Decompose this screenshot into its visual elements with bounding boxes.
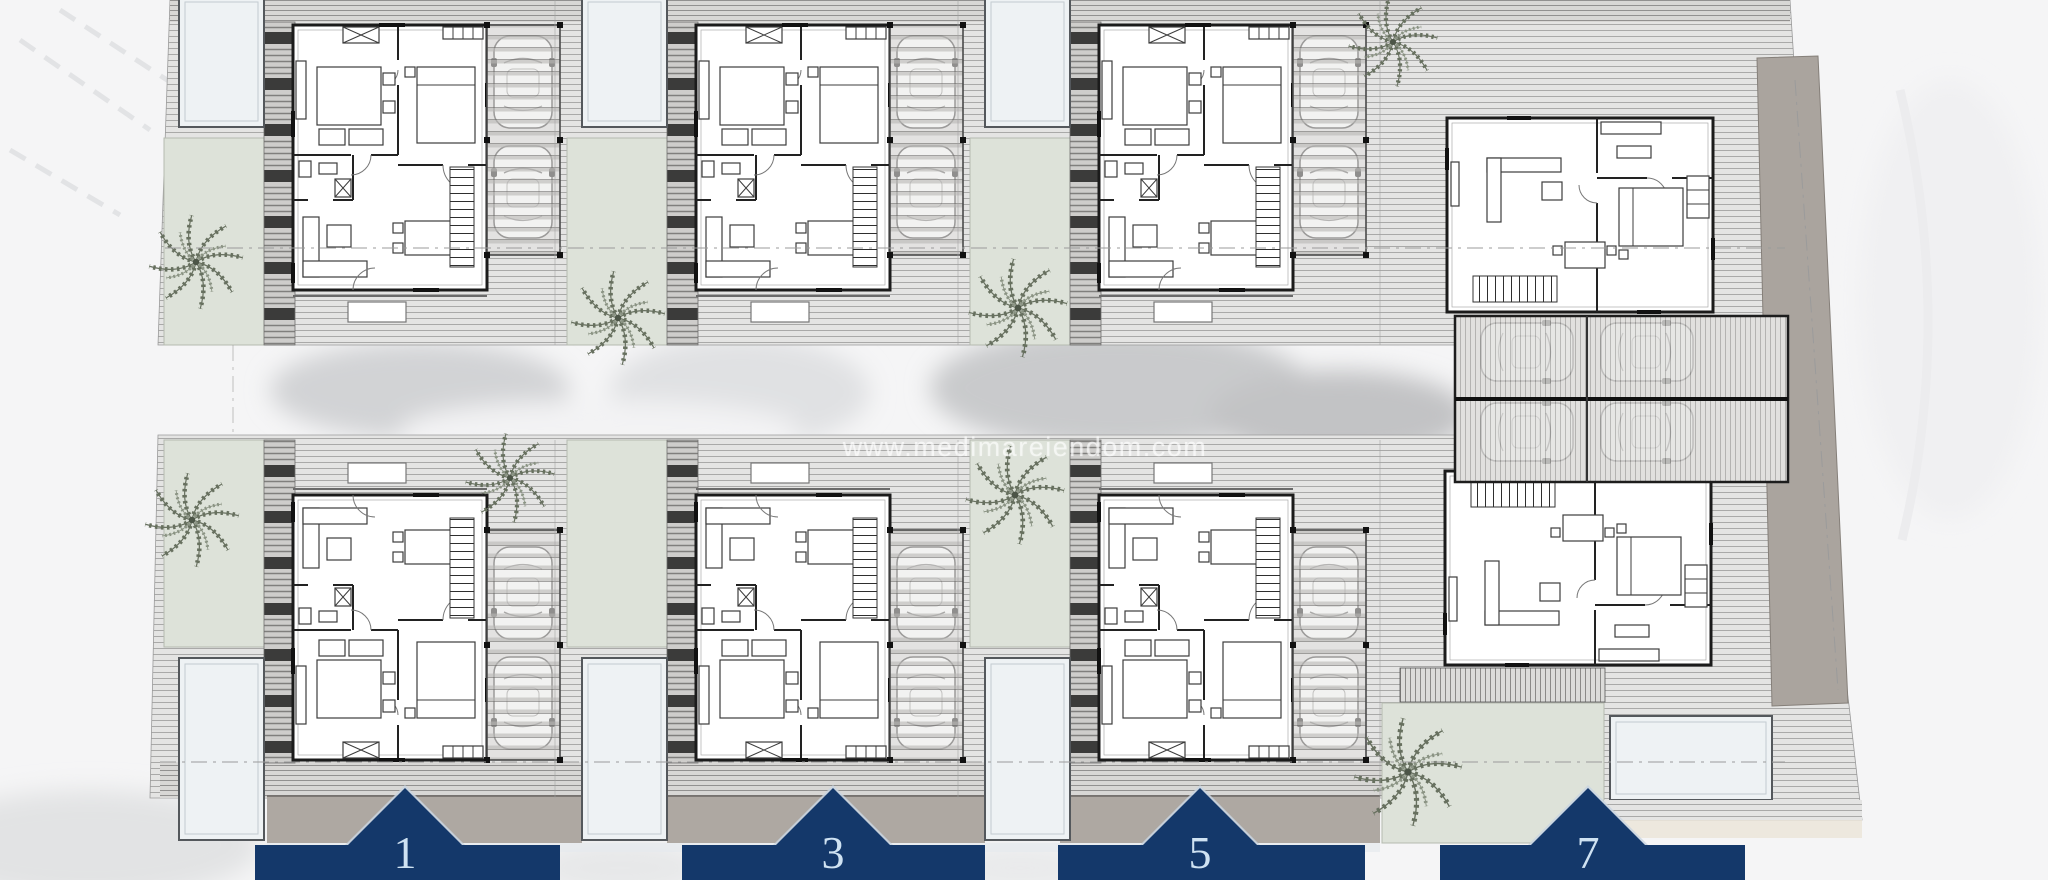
unit-marker-1[interactable]: 1 <box>255 788 560 880</box>
watermark: www.medimareiendom.com <box>825 432 1225 463</box>
unit-banner-bar <box>1058 845 1365 880</box>
unit-number: 3 <box>822 830 845 876</box>
unit-number: 1 <box>394 830 417 876</box>
unit-number: 7 <box>1577 830 1600 876</box>
unit-marker-3[interactable]: 3 <box>682 788 985 880</box>
unit-marker-7[interactable]: 7 <box>1440 788 1745 880</box>
site-plan-page: www.medimareiendom.com 1 3 5 7 <box>0 0 2048 880</box>
unit-number: 5 <box>1189 830 1212 876</box>
shared-parking <box>1455 316 1788 482</box>
unit-marker-5[interactable]: 5 <box>1058 788 1365 880</box>
